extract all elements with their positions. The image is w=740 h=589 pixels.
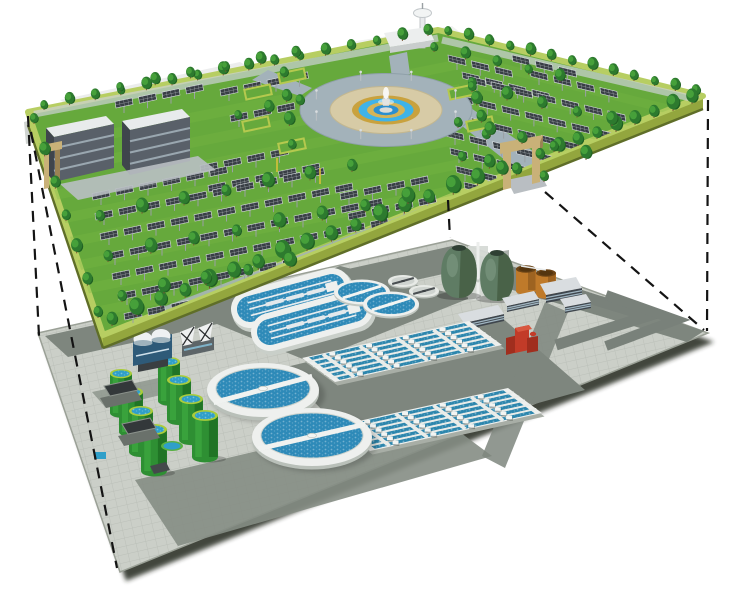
pump-cylinder [530, 332, 536, 336]
tree-crown-light [555, 70, 561, 77]
tree-crown-light [282, 90, 288, 97]
tree-crown-light [512, 163, 518, 170]
tank-hub [422, 290, 426, 292]
aerator-unit [468, 424, 474, 427]
lamp-head [454, 89, 457, 92]
aerator-unit [408, 340, 414, 343]
aerator-unit [478, 395, 484, 398]
tree-crown-light [687, 90, 694, 98]
tree-crown-light [256, 52, 262, 59]
tree-crown-light [651, 77, 656, 82]
lamp-head [359, 71, 362, 74]
tree-crown-light [235, 111, 240, 116]
tree-crown-light [83, 273, 89, 280]
dome-1-base [134, 340, 153, 346]
tree-crown-light [288, 140, 293, 146]
tree-crown-light [607, 112, 614, 120]
tree-crown-light [573, 107, 578, 113]
aerator-unit [463, 420, 469, 423]
tree-crown-light [62, 210, 67, 216]
aerator-unit [489, 403, 495, 406]
clarifier-hub [359, 291, 365, 294]
tree-crown-light [447, 177, 456, 187]
lamp-head [454, 110, 457, 113]
tree-crown-light [424, 190, 431, 198]
lamp-head [315, 110, 318, 113]
aerator-unit [483, 399, 489, 402]
aerator-unit [430, 356, 436, 359]
tree-crown-light [374, 206, 383, 216]
egg-cap [490, 250, 504, 256]
aerator-unit [445, 332, 451, 335]
tree-crown-light [117, 83, 122, 88]
tank-top-inner [539, 270, 553, 275]
tank-water-texture [170, 377, 189, 384]
aerator-unit [387, 437, 393, 440]
aerator-unit [357, 372, 363, 375]
tree-crown-light [472, 169, 480, 178]
tree-crown-light [305, 167, 312, 175]
clarifier-small-2 [409, 285, 439, 299]
tree-crown-light [253, 255, 260, 263]
tree-crown-light [518, 132, 524, 139]
tree-crown-light [168, 74, 174, 80]
aerator-unit [440, 328, 446, 331]
aerator-unit [425, 352, 431, 355]
tank-highlight [161, 362, 167, 401]
tree-crown-light [468, 82, 473, 88]
aerator-unit [366, 344, 372, 347]
aerator-unit [372, 348, 378, 351]
clarifier-hub [308, 433, 317, 437]
aerator-unit [430, 432, 436, 435]
tree-crown-light [228, 263, 236, 272]
aerator-unit [413, 420, 419, 423]
tank-water-texture [195, 412, 215, 420]
tree-crown-light [536, 149, 542, 155]
tree-crown-light [179, 192, 186, 200]
tree-crown-light [317, 207, 324, 215]
aerator-unit [467, 348, 473, 351]
tree-crown-light [296, 95, 301, 101]
tree-crown-light [424, 25, 430, 31]
tree-crown-light [159, 279, 166, 287]
tree-crown-light [445, 27, 450, 32]
tree-crown-light [142, 78, 148, 85]
aerator-unit [408, 416, 414, 419]
aerator-unit [419, 348, 425, 351]
aerator-unit [446, 407, 452, 410]
tree-crown-light [630, 71, 635, 77]
egg-highlight [447, 254, 458, 277]
aerator-unit [440, 403, 446, 406]
tank-water-texture [132, 408, 151, 415]
tree-crown-light [244, 59, 250, 66]
tree-crown-light [271, 55, 276, 61]
aerator-unit [383, 356, 389, 359]
tree-crown-light [540, 171, 545, 177]
egg-cap [452, 245, 466, 251]
tank-highlight [170, 380, 176, 420]
tree-crown-light [347, 160, 353, 167]
dome-2-base [152, 337, 171, 343]
aerator-unit [500, 412, 506, 415]
lamp-head [410, 129, 413, 132]
tree-crown-light [431, 43, 436, 48]
tree-crown-light [667, 95, 675, 104]
tree-crown-light [222, 62, 227, 67]
tree-crown-light [573, 133, 580, 141]
tree-crown-light [538, 97, 544, 104]
tree-crown-light [321, 44, 327, 51]
egg-digesters [437, 242, 518, 303]
tree-crown-light [189, 232, 196, 240]
aerator-unit [495, 407, 501, 410]
tree-crown-light [461, 47, 467, 54]
tree-crown-light [51, 177, 57, 184]
tree-crown-light [284, 113, 291, 121]
aerator-unit [462, 344, 468, 347]
aerator-unit [351, 368, 357, 371]
tree-crown-light [301, 234, 310, 244]
tree-crown-light [593, 127, 599, 134]
tree-crown-light [180, 284, 187, 292]
tree-crown-light [464, 29, 470, 36]
aerator-unit [381, 433, 387, 436]
tree-crown-light [41, 101, 46, 106]
tree-crown-light [454, 118, 459, 124]
egg-highlight [485, 259, 496, 282]
tree-crown-light [477, 111, 483, 118]
tree-crown-light [351, 219, 358, 227]
aerator-unit [394, 364, 400, 367]
aerator-unit [335, 356, 341, 359]
tree-crown-light [292, 47, 298, 53]
clarifier-medium-2 [363, 292, 419, 319]
tree-crown-light [526, 44, 532, 51]
tree-crown-light [262, 173, 270, 182]
tree-crown-light [472, 92, 479, 100]
tower-deck [414, 9, 432, 18]
tree-crown-light [609, 64, 615, 71]
tank-highlight [182, 399, 188, 440]
tree-crown-light [104, 251, 110, 257]
tree-crown-light [40, 143, 47, 151]
pump-block-3 [527, 336, 538, 353]
tree-crown-light [30, 114, 35, 120]
tree-crown-light [506, 42, 511, 47]
tree-crown-light [547, 50, 553, 56]
clarifier-small-1 [388, 275, 418, 289]
tank-water-texture [112, 370, 129, 376]
tree-crown-light [525, 65, 530, 70]
tree-crown-light [485, 123, 492, 131]
tank-hub [401, 280, 405, 282]
tree-crown-light [484, 155, 491, 163]
tree-crown-light [244, 265, 250, 272]
tree-crown-light [186, 68, 191, 74]
tree-crown-light [485, 35, 490, 41]
aerator-unit [402, 412, 408, 415]
tree-crown-light [497, 162, 504, 170]
tree-crown-light [280, 67, 285, 73]
lamp-head [359, 129, 362, 132]
aerator-unit [370, 424, 376, 427]
aerator-unit [457, 416, 463, 419]
ground-basin-water [164, 442, 181, 449]
tank-highlight [195, 415, 202, 457]
dome-tank-unit [133, 329, 172, 372]
clarifier-hub [388, 303, 394, 306]
aerator-unit [388, 360, 394, 363]
tree-crown-light [137, 199, 144, 207]
tree-crown-light [671, 79, 677, 86]
tree-crown-light [96, 211, 102, 217]
tree-crown-light [94, 307, 100, 313]
tree-crown-light [222, 185, 228, 192]
aerator-unit [346, 364, 352, 367]
aerator-unit [340, 360, 346, 363]
tree-crown-light [151, 73, 157, 80]
tree-crown-light [373, 36, 378, 41]
aerator-unit [393, 441, 399, 444]
aerator-unit [403, 336, 409, 339]
tree-crown-light [91, 89, 96, 95]
tree-crown-light [265, 101, 271, 108]
tree-crown-light [107, 313, 114, 321]
aerator-unit [425, 428, 431, 431]
fountain-splash [378, 99, 394, 105]
tree-crown-light [402, 188, 410, 197]
tree-crown-light [458, 152, 463, 158]
lamp-head [315, 89, 318, 92]
tree-crown-light [232, 226, 238, 233]
lamp-head [410, 71, 413, 74]
tree-crown-light [130, 299, 139, 309]
tree-crown-light [588, 58, 595, 65]
tree-crown-light [72, 240, 79, 248]
aerator-unit [419, 424, 425, 427]
tree-crown-light [361, 200, 367, 207]
fountain-spray [383, 87, 389, 99]
tree-crown-light [398, 29, 404, 36]
aerator-unit [456, 340, 462, 343]
aerator-unit [451, 336, 457, 339]
tree-crown-light [118, 291, 124, 297]
tree-crown-light [493, 56, 498, 62]
tree-crown-light [276, 242, 285, 253]
tree-crown-light [550, 141, 555, 147]
tree-crown-light [649, 106, 655, 113]
tree-crown-light [502, 87, 509, 95]
aerator-unit [377, 352, 383, 355]
aerator-unit [506, 416, 512, 419]
fountain-island [380, 107, 393, 113]
tree-crown-light [347, 40, 352, 46]
cutaway-illustration [0, 0, 740, 589]
tank-shade [209, 415, 218, 457]
tree-crown-light [326, 227, 334, 236]
tree-crown-light [65, 93, 71, 100]
scene-svg [0, 0, 740, 589]
tree-crown-light [201, 272, 208, 280]
aerator-unit [376, 428, 382, 431]
tank-water-texture [182, 396, 201, 403]
tree-crown-light [630, 111, 637, 119]
tree-crown-light [145, 239, 152, 247]
aerator-unit [329, 352, 335, 355]
tree-crown-light [274, 214, 282, 223]
aerator-unit [414, 344, 420, 347]
aerator-unit [451, 412, 457, 415]
tree-crown-light [581, 146, 588, 154]
tree-crown-light [568, 56, 573, 62]
tree-crown-light [155, 292, 163, 301]
tree-crown-light [284, 253, 292, 262]
clarifier-hub [259, 386, 268, 390]
